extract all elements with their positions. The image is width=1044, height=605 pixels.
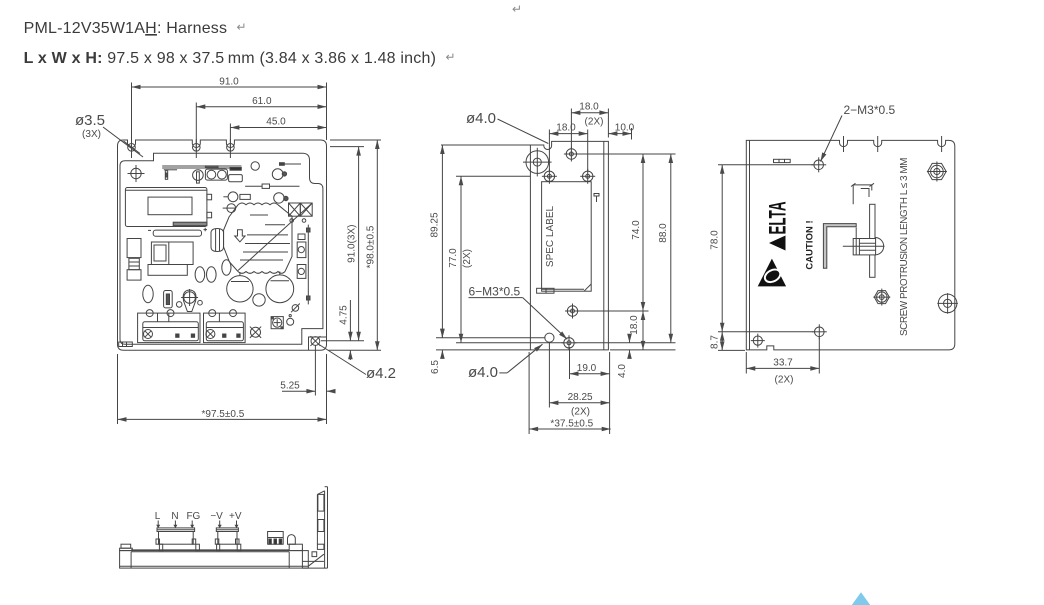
svg-text:6.5: 6.5 — [430, 360, 441, 374]
svg-text:L: L — [155, 511, 161, 522]
svg-text:ELTA: ELTA — [765, 202, 792, 235]
svg-text:33.7: 33.7 — [773, 357, 793, 368]
svg-text:(2X): (2X) — [462, 249, 473, 268]
svg-text:28.25: 28.25 — [568, 392, 593, 403]
svg-text:ø4.2: ø4.2 — [366, 365, 396, 382]
svg-text:91.0(3X): 91.0(3X) — [347, 225, 358, 263]
svg-text:↵: ↵ — [512, 2, 522, 16]
svg-text:*97.5±0.5: *97.5±0.5 — [202, 409, 245, 420]
svg-text:*98.0±0.5: *98.0±0.5 — [365, 225, 376, 268]
svg-text:+V: +V — [229, 511, 242, 522]
svg-text:ø3.5: ø3.5 — [75, 112, 105, 129]
svg-text:CAUTION !: CAUTION ! — [804, 220, 815, 269]
svg-text:8.7: 8.7 — [709, 335, 720, 349]
svg-text:6−M3*0.5: 6−M3*0.5 — [469, 285, 521, 299]
svg-text:74.0: 74.0 — [631, 220, 642, 240]
svg-text:61.0: 61.0 — [252, 96, 272, 107]
svg-text:SPEC LABEL: SPEC LABEL — [545, 205, 556, 267]
svg-text:(2X): (2X) — [585, 117, 604, 128]
svg-text:*37.5±0.5: *37.5±0.5 — [550, 418, 593, 429]
svg-text:2−M3*0.5: 2−M3*0.5 — [844, 103, 896, 117]
svg-text:18.0: 18.0 — [579, 102, 599, 113]
svg-text:4.0: 4.0 — [617, 364, 628, 378]
svg-text:(3X): (3X) — [82, 129, 101, 140]
svg-text:−V: −V — [210, 511, 223, 522]
svg-text:88.0: 88.0 — [658, 223, 669, 243]
svg-text:L x W x H: 97.5 x 98 x 37.5 mm: L x W x H: 97.5 x 98 x 37.5 mm (3.84 x 3… — [24, 50, 437, 67]
svg-text:91.0: 91.0 — [219, 76, 239, 87]
svg-text:19.0: 19.0 — [577, 363, 597, 374]
svg-text:ø4.0: ø4.0 — [468, 364, 498, 381]
svg-text:↵: ↵ — [446, 50, 456, 64]
svg-text:45.0: 45.0 — [266, 117, 286, 128]
svg-text:78.0: 78.0 — [709, 230, 720, 250]
svg-text:77.0: 77.0 — [448, 248, 459, 268]
svg-text:ø4.0: ø4.0 — [466, 110, 496, 127]
svg-text:4.75: 4.75 — [339, 305, 350, 325]
svg-text:FG: FG — [186, 511, 200, 522]
svg-text:10.0: 10.0 — [615, 123, 635, 134]
svg-text:5.25: 5.25 — [280, 381, 300, 392]
svg-text:(2X): (2X) — [775, 374, 794, 385]
svg-text:18.0: 18.0 — [629, 315, 640, 335]
svg-text:N: N — [171, 511, 178, 522]
svg-text:18.0: 18.0 — [556, 123, 576, 134]
svg-text:↵: ↵ — [237, 20, 247, 34]
svg-text:SCREW PROTRUSION LENGTH L ≤ 3: SCREW PROTRUSION LENGTH L ≤ 3 MM — [899, 158, 910, 336]
svg-text:(2X): (2X) — [571, 407, 590, 418]
svg-text:89.25: 89.25 — [430, 212, 441, 237]
svg-text:PML-12V35W1AH: Harness: PML-12V35W1AH: Harness — [24, 20, 228, 37]
